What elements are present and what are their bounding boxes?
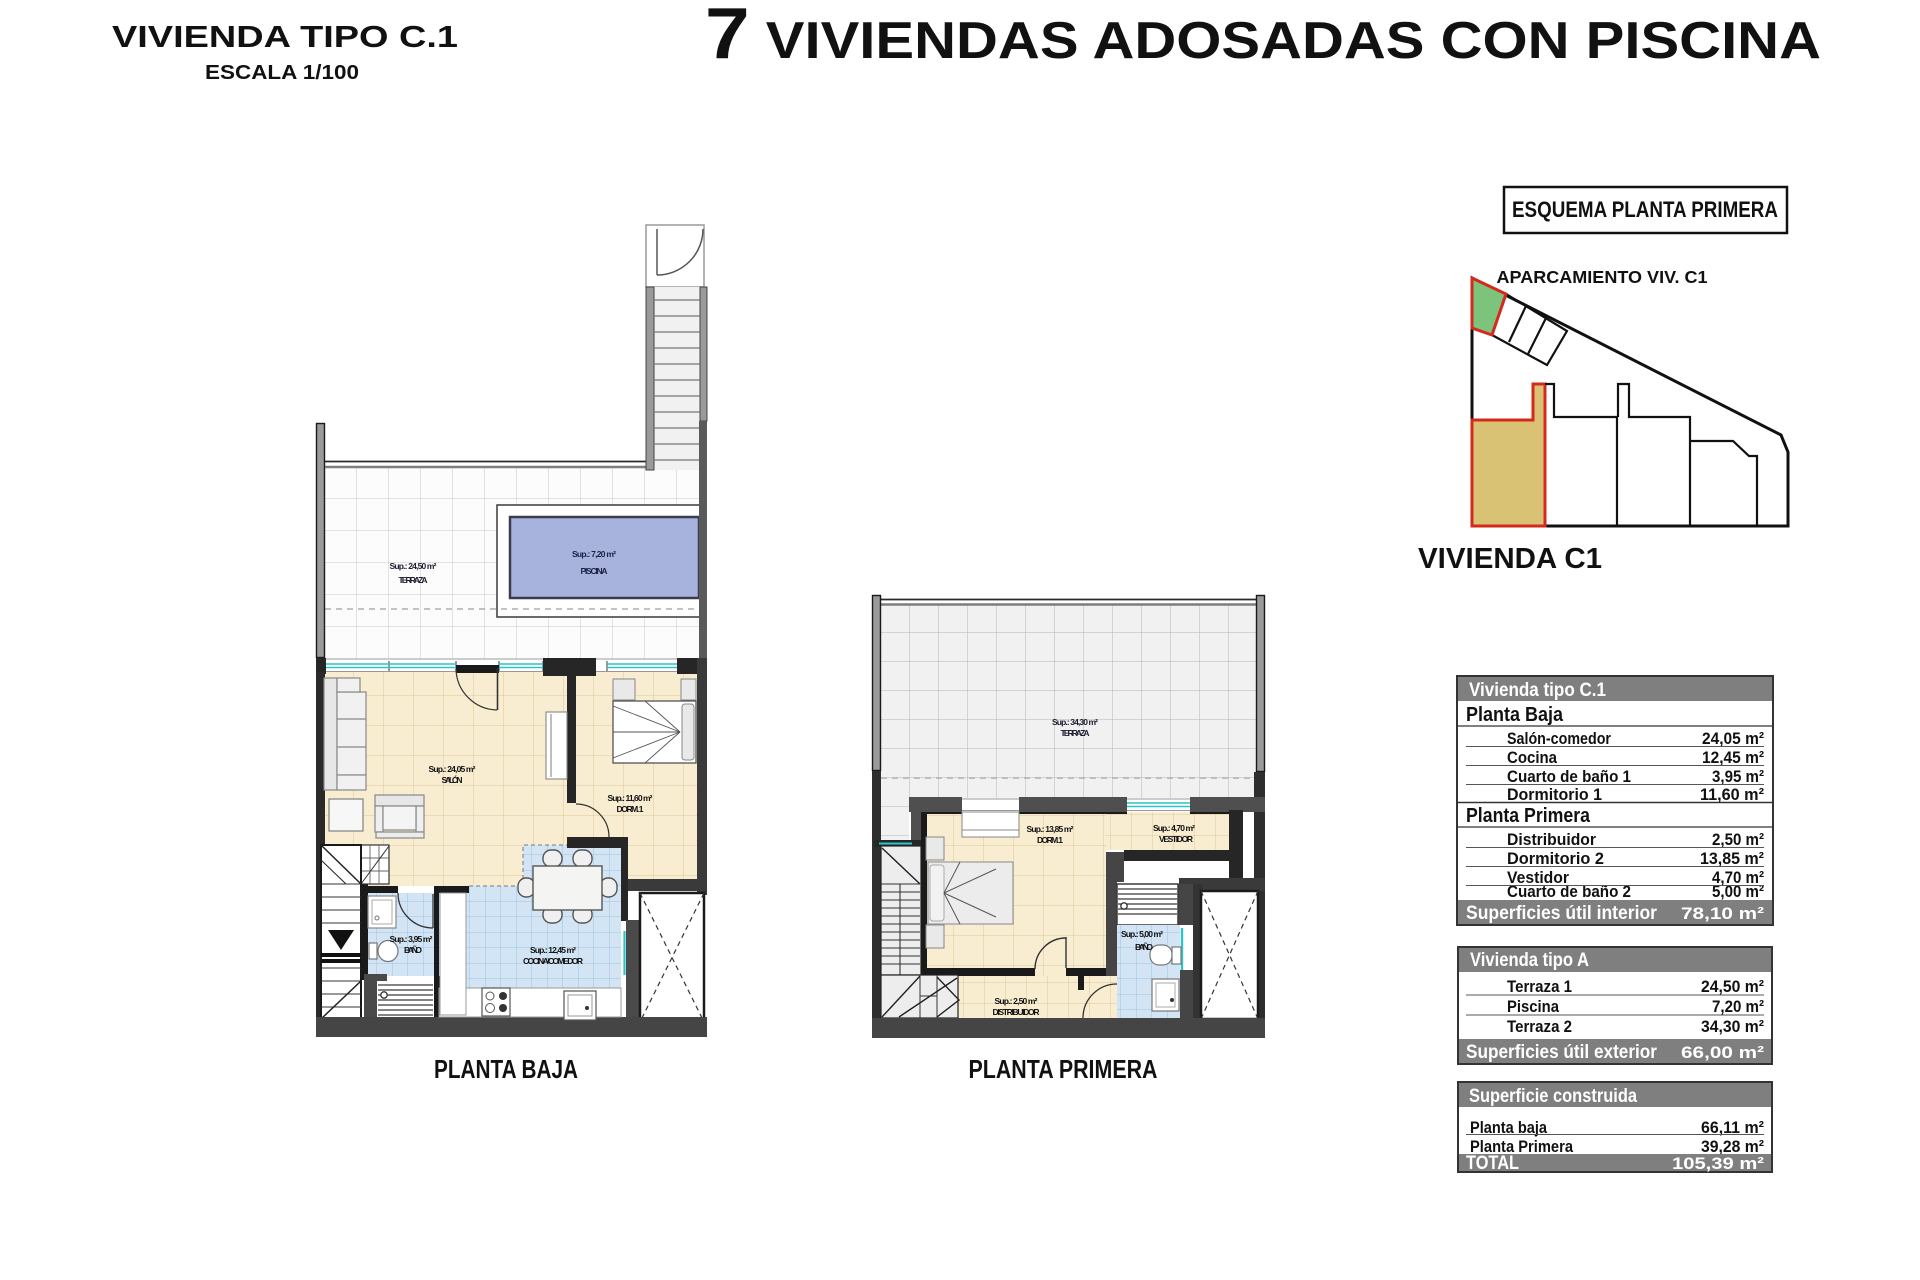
- svg-text:TERRAZA: TERRAZA: [1061, 728, 1090, 738]
- svg-text:VESTIDOR: VESTIDOR: [1159, 834, 1193, 844]
- svg-text:PLANTA PRIMERA: PLANTA PRIMERA: [969, 1054, 1158, 1084]
- svg-text:Planta Baja: Planta Baja: [1466, 704, 1564, 726]
- svg-text:13,85 m²: 13,85 m²: [1700, 850, 1764, 868]
- svg-text:Superficie construida: Superficie construida: [1469, 1086, 1637, 1107]
- svg-text:Sup.: 7,20 m²: Sup.: 7,20 m²: [572, 549, 616, 559]
- svg-text:Terraza 1: Terraza 1: [1507, 978, 1572, 996]
- svg-text:3,95 m²: 3,95 m²: [1712, 768, 1764, 786]
- svg-text:VIVIENDA TIPO C.1: VIVIENDA TIPO C.1: [112, 19, 458, 54]
- svg-text:Superficies útil exterior: Superficies útil exterior: [1466, 1042, 1658, 1063]
- svg-text:DORM. 1: DORM. 1: [1037, 835, 1063, 845]
- svg-text:24,50 m²: 24,50 m²: [1701, 978, 1764, 996]
- svg-text:Planta Primera: Planta Primera: [1466, 805, 1591, 827]
- svg-text:BAÑO: BAÑO: [404, 945, 422, 955]
- svg-text:PLANTA BAJA: PLANTA BAJA: [434, 1054, 578, 1084]
- svg-text:Sup.: 11,60 m²: Sup.: 11,60 m²: [608, 793, 653, 803]
- svg-text:78,10 m²: 78,10 m²: [1681, 904, 1764, 923]
- svg-text:Vivienda tipo C.1: Vivienda tipo C.1: [1469, 680, 1606, 701]
- svg-text:DISTRIBUIDOR: DISTRIBUIDOR: [993, 1007, 1040, 1017]
- svg-text:12,45 m²: 12,45 m²: [1702, 749, 1764, 767]
- svg-text:Sup.: 24,05 m²: Sup.: 24,05 m²: [429, 764, 476, 774]
- svg-text:APARCAMIENTO VIV. C1: APARCAMIENTO VIV. C1: [1497, 267, 1708, 287]
- svg-text:Cuarto de baño 1: Cuarto de baño 1: [1507, 768, 1631, 786]
- svg-text:TOTAL: TOTAL: [1466, 1153, 1519, 1174]
- svg-text:PISCINA: PISCINA: [581, 566, 608, 576]
- svg-text:Dormitorio 1: Dormitorio 1: [1507, 786, 1602, 804]
- svg-text:Sup.: 12,45 m²: Sup.: 12,45 m²: [530, 945, 576, 955]
- svg-text:Terraza 2: Terraza 2: [1507, 1018, 1572, 1036]
- svg-text:Sup.: 13,85 m²: Sup.: 13,85 m²: [1027, 824, 1074, 834]
- svg-text:Superficies útil interior: Superficies útil interior: [1466, 903, 1658, 924]
- svg-text:105,39 m²: 105,39 m²: [1672, 1154, 1764, 1173]
- svg-text:Salón-comedor: Salón-comedor: [1507, 730, 1611, 748]
- svg-text:Sup.: 3,95 m²: Sup.: 3,95 m²: [390, 934, 433, 944]
- svg-text:Sup.: 5,00 m²: Sup.: 5,00 m²: [1121, 929, 1163, 939]
- svg-text:34,30 m²: 34,30 m²: [1701, 1018, 1764, 1036]
- svg-text:VIVIENDA C1: VIVIENDA C1: [1418, 543, 1602, 575]
- svg-text:2,50 m²: 2,50 m²: [1712, 831, 1764, 849]
- svg-text:Vivienda tipo A: Vivienda tipo A: [1470, 950, 1589, 971]
- svg-text:Dormitorio 2: Dormitorio 2: [1507, 850, 1604, 868]
- svg-text:BAÑO: BAÑO: [1135, 942, 1153, 952]
- svg-text:SALÓN: SALÓN: [442, 774, 463, 785]
- svg-text:Distribuidor: Distribuidor: [1507, 831, 1597, 849]
- svg-text:7,20 m²: 7,20 m²: [1712, 998, 1764, 1016]
- svg-text:66,00 m²: 66,00 m²: [1681, 1043, 1764, 1062]
- svg-text:Sup.: 24,50 m²: Sup.: 24,50 m²: [390, 561, 437, 571]
- svg-text:ESCALA 1/100: ESCALA 1/100: [205, 62, 359, 84]
- svg-text:Sup.: 2,50 m²: Sup.: 2,50 m²: [995, 996, 1038, 1006]
- svg-text:ESQUEMA PLANTA PRIMERA: ESQUEMA PLANTA PRIMERA: [1512, 197, 1778, 222]
- svg-text:DORM. 1: DORM. 1: [617, 804, 644, 814]
- svg-text:Sup.: 4,70 m²: Sup.: 4,70 m²: [1153, 823, 1195, 833]
- svg-text:Sup.: 34,30 m²: Sup.: 34,30 m²: [1052, 717, 1098, 727]
- svg-text:Piscina: Piscina: [1507, 998, 1560, 1016]
- svg-text:Cocina: Cocina: [1507, 749, 1558, 767]
- svg-text:TERRAZA: TERRAZA: [399, 575, 428, 585]
- svg-text:7 VIVIENDAS ADOSADAS CON PISCI: 7 VIVIENDAS ADOSADAS CON PISCINA: [705, 0, 1821, 74]
- svg-text:24,05 m²: 24,05 m²: [1702, 730, 1764, 748]
- svg-text:COCINA/COMEDOR: COCINA/COMEDOR: [523, 956, 583, 966]
- svg-text:11,60 m²: 11,60 m²: [1700, 786, 1764, 804]
